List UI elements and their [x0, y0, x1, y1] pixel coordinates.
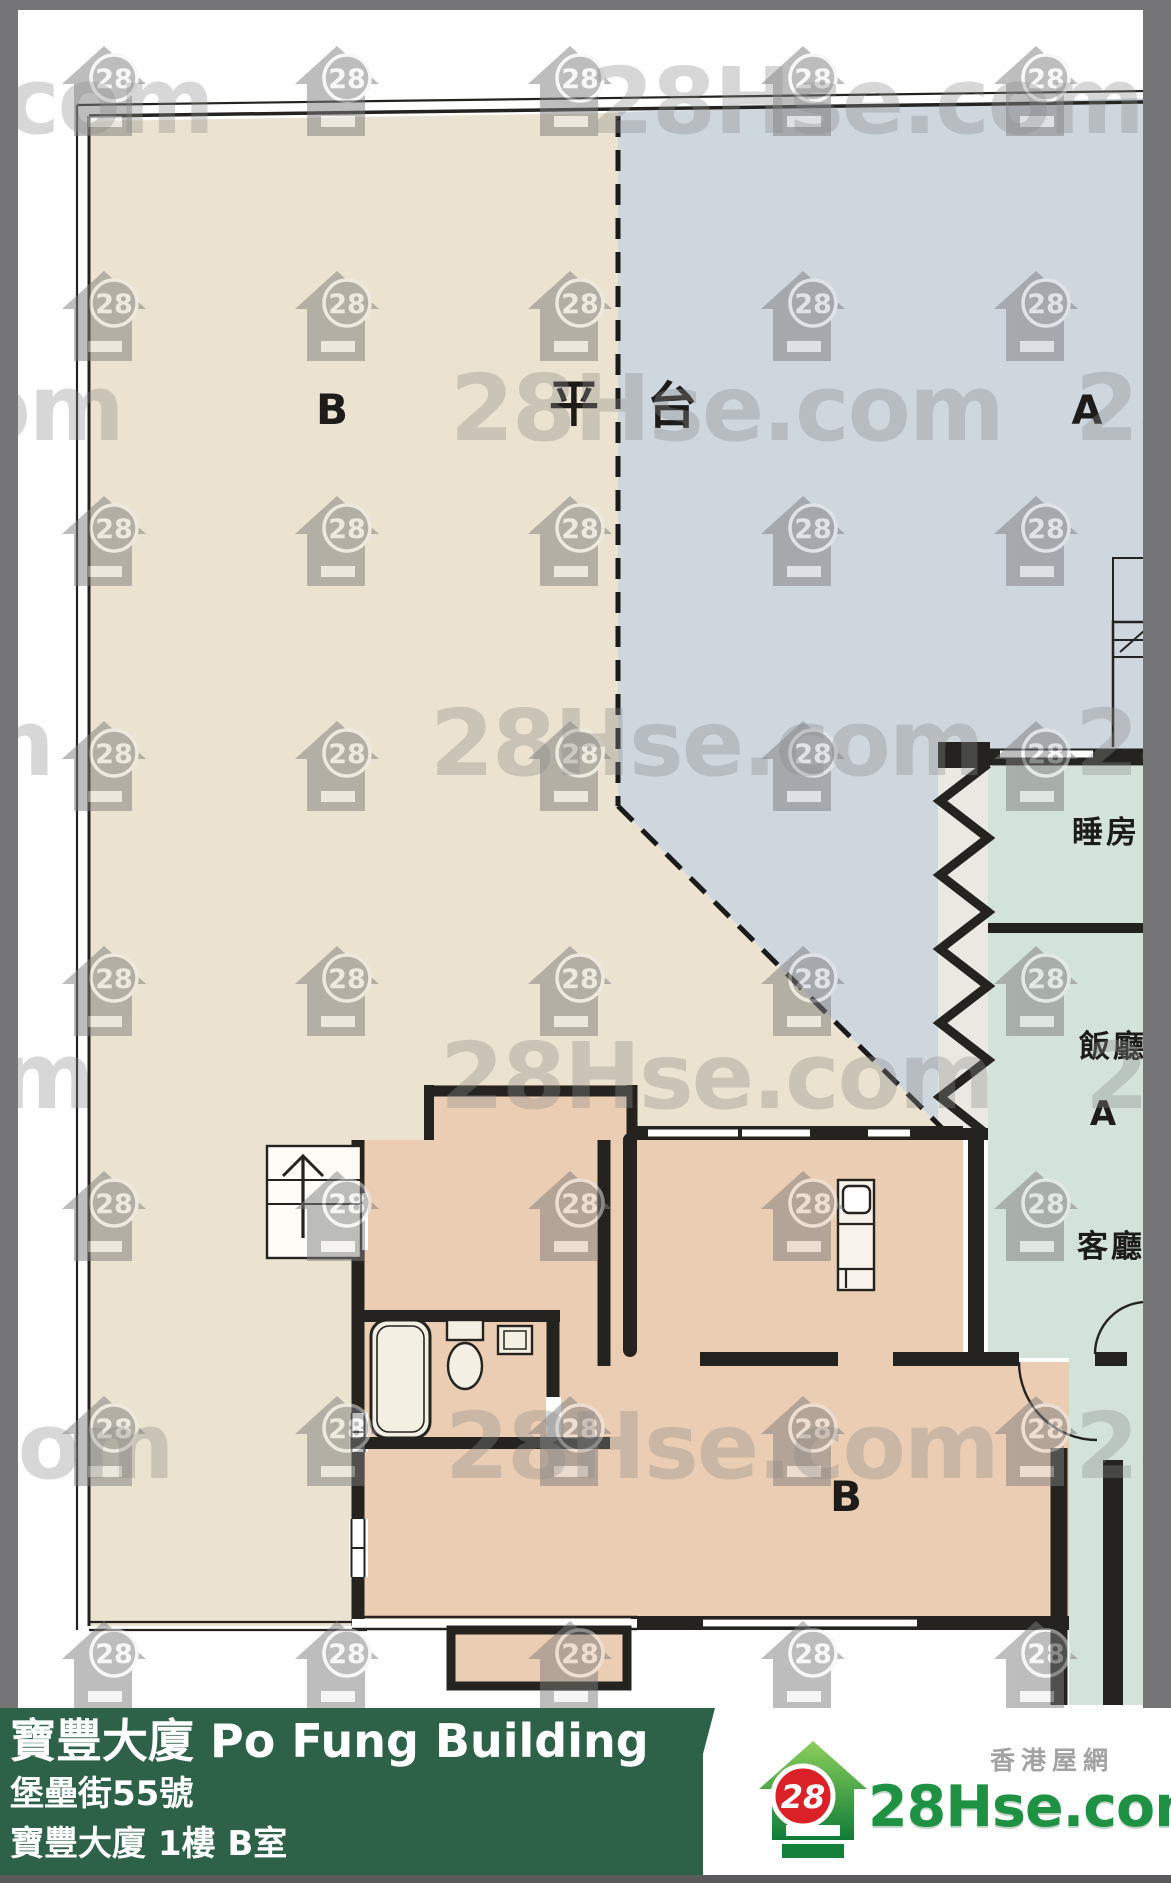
- floor-plan-page: 28: [0, 0, 1171, 1883]
- building-unit: 寶豐大廈 1樓 B室: [10, 1827, 703, 1863]
- building-info-bar: 寶豐大廈 Po Fung Building 堡壘街55號 寶豐大廈 1樓 B室: [0, 1708, 703, 1875]
- site-logo-text: 28Hse.com: [868, 1774, 1171, 1840]
- svg-text:28Hse.com: 28Hse.com: [430, 690, 983, 797]
- site-brand-box: 香港屋網 28 28Hse.com: [703, 1708, 1171, 1875]
- floor-plan-image: 28: [0, 0, 1171, 1708]
- kitchen-fixtures: [838, 1180, 874, 1290]
- building-title: 寶豐大廈 Po Fung Building: [10, 1716, 703, 1768]
- svg-text:28Hse.com: 28Hse.com: [440, 1023, 993, 1130]
- living-label: 客廳: [1077, 1229, 1145, 1265]
- building-address: 堡壘街55號: [10, 1777, 703, 1813]
- svg-text:28Hse.com: 28Hse.com: [0, 1697, 133, 1708]
- svg-text:28Hse.com: 28Hse.com: [450, 355, 1003, 462]
- page-border-bottom: [0, 1875, 1171, 1883]
- svg-text:28Hse.com: 28Hse.com: [590, 48, 1143, 155]
- bedroom-label: 睡房: [1072, 815, 1140, 851]
- svg-text:28Hse.com: 28Hse.com: [445, 1393, 998, 1500]
- site-logo-icon: 28: [756, 1738, 870, 1864]
- sink: [498, 1326, 532, 1354]
- toilet-bowl: [448, 1343, 482, 1389]
- svg-text:28Hse.com: 28Hse.com: [0, 1393, 173, 1500]
- svg-text:28Hse.com: 28Hse.com: [0, 48, 213, 155]
- site-tagline: 香港屋網: [990, 1741, 1114, 1777]
- svg-text:28Hse.com: 28Hse.com: [455, 1697, 1008, 1708]
- page-border-right: [1143, 0, 1171, 1712]
- toilet-tank: [447, 1320, 483, 1340]
- page-border-left: [0, 0, 18, 1712]
- svg-text:28Hse.com: 28Hse.com: [0, 355, 123, 462]
- terrace-b-label: B: [316, 385, 348, 434]
- bathtub: [371, 1320, 430, 1438]
- svg-text:28: 28: [781, 1778, 826, 1816]
- page-border-top: [0, 0, 1171, 10]
- green-corner-sliver: [703, 1708, 715, 1754]
